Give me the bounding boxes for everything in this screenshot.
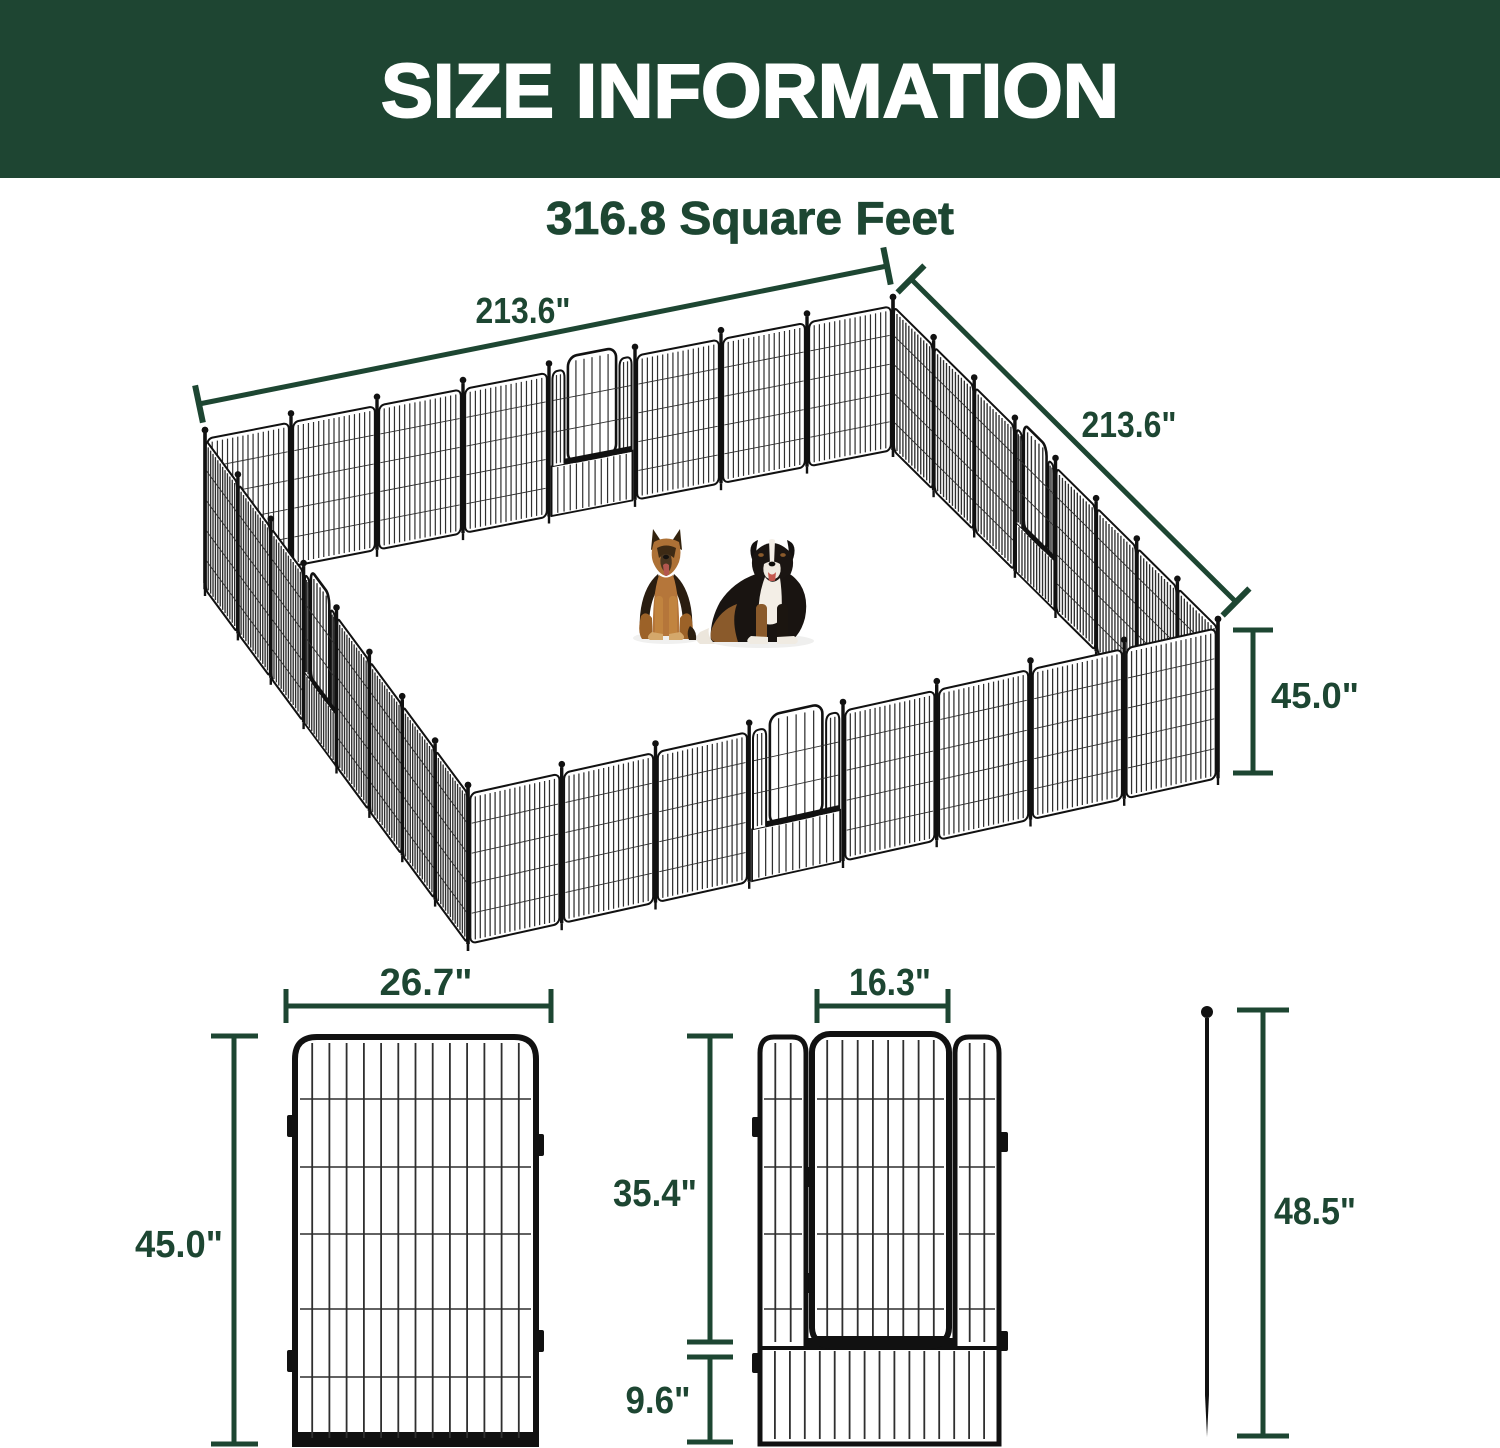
svg-text:213.6": 213.6"	[476, 290, 571, 331]
svg-text:45.0": 45.0"	[1271, 675, 1359, 716]
svg-text:316.8 Square Feet: 316.8 Square Feet	[546, 192, 954, 244]
svg-text:48.5": 48.5"	[1274, 1191, 1356, 1233]
svg-text:SIZE INFORMATION: SIZE INFORMATION	[381, 49, 1119, 134]
svg-text:45.0": 45.0"	[135, 1224, 223, 1266]
svg-text:35.4": 35.4"	[613, 1173, 697, 1215]
svg-text:16.3": 16.3"	[849, 962, 931, 1004]
svg-text:26.7": 26.7"	[380, 962, 473, 1004]
svg-text:213.6": 213.6"	[1082, 404, 1177, 445]
svg-text:9.6": 9.6"	[626, 1380, 691, 1422]
